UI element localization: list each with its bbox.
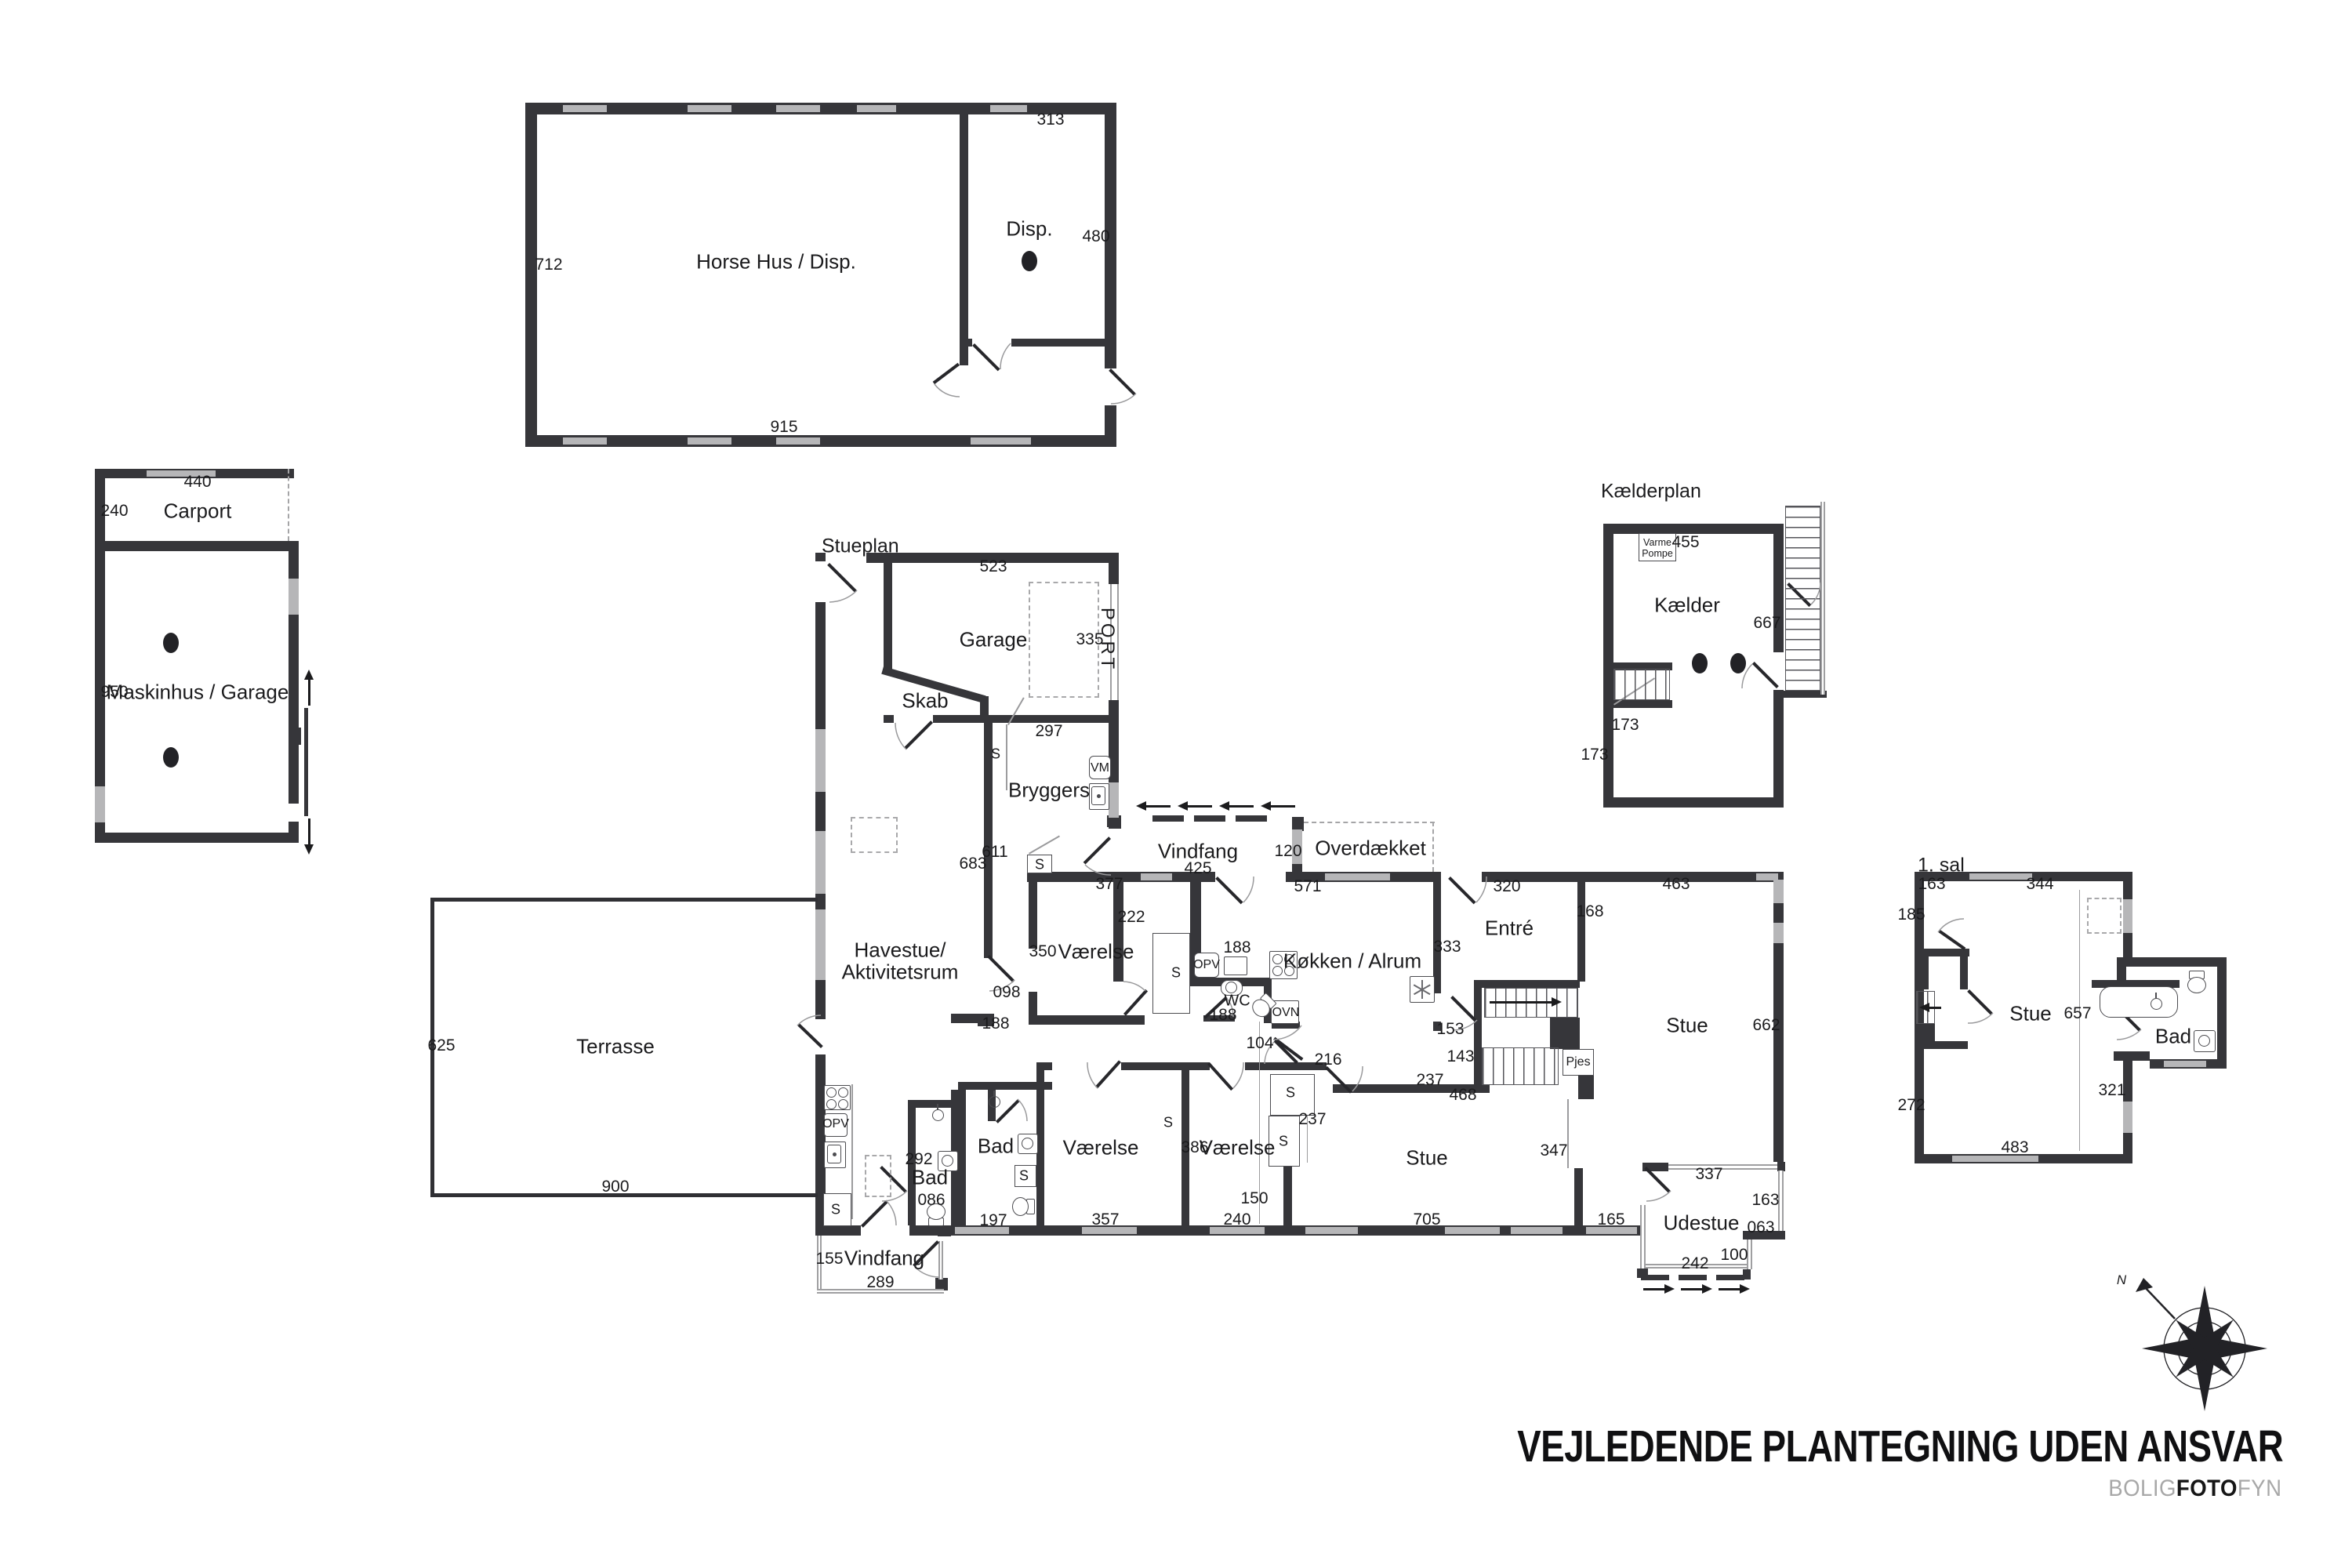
dimension-label: 155 [815,1250,843,1269]
dimension-label: 188 [982,1014,1009,1033]
dimension-label: S [991,746,1000,763]
dimension-label: 900 [601,1178,629,1196]
dimension-label: 347 [1540,1142,1567,1160]
dimension-label: 377 [1095,875,1123,894]
dimension-label: 240 [100,502,128,521]
room-label: Maskinhus / Garage [107,681,289,705]
room-label: Værelse [1058,940,1134,964]
dimension-label: 321 [2098,1081,2125,1100]
dimension-label: 297 [1035,722,1062,741]
dimension-label: 571 [1294,877,1321,896]
room-label: Garage [960,628,1028,652]
dimension-label: S [1279,1134,1288,1150]
dimension-label: 350 [1029,942,1056,961]
room-label: Entré [1485,916,1534,941]
dimension-label: OVN [1272,1006,1300,1020]
dimension-label: 222 [1117,908,1145,927]
dimension-label: 313 [1036,111,1064,129]
dimension-label: 168 [1576,902,1603,921]
room-label: Værelse [1063,1136,1139,1160]
dimension-label: 289 [866,1273,894,1292]
dimension-label: 455 [1671,533,1699,552]
dimension-label: 712 [535,256,562,274]
dimension-label: 120 [1274,842,1301,861]
dimension-label: 197 [979,1211,1007,1230]
dimension-label: 086 [917,1191,945,1210]
room-label: 1. sal [1918,855,1965,877]
floorplan-canvas: Horse Hus / Disp.Disp.313712480915440Car… [0,0,2352,1568]
dimension-label: 063 [1747,1218,1774,1237]
dimension-label: 143 [1446,1047,1474,1066]
room-label: Køkken / Alrum [1283,949,1421,974]
dimension-label: 657 [2063,1004,2091,1023]
room-label: Udestue [1664,1211,1740,1236]
dimension-label: 523 [979,557,1007,576]
dimension-label: OPV [822,1117,849,1131]
dimension-label: 104 [1246,1034,1273,1053]
dimension-label: S [1286,1085,1295,1102]
dimension-label: 237 [1298,1110,1326,1129]
dimension-label: 667 [1753,614,1780,633]
dimension-label: 463 [1662,875,1690,894]
dimension-label: 272 [1897,1096,1925,1115]
room-label: Bad [978,1134,1014,1159]
room-label: Bad [2155,1025,2191,1049]
dimension-label: 150 [1240,1189,1268,1208]
dimension-label: OPV [1193,958,1220,972]
dimension-label: PORT [1096,608,1118,672]
dimension-label: S [1171,965,1181,982]
dimension-label: 705 [1413,1210,1440,1229]
door-arcs [0,0,2352,1568]
compass-icon [2132,1275,2274,1416]
room-label: Aktivitetsrum [842,960,959,985]
brand-logo: BOLIGFOTOFYN [2108,1475,2281,1502]
room-label: Carport [164,499,232,524]
dimension-label: 237 [1416,1071,1443,1090]
room-label: Bad [912,1166,948,1190]
dimension-label: 915 [770,418,797,437]
dimension-label: 240 [1223,1210,1250,1229]
dimension-label: Pjes [1566,1055,1590,1069]
dimension-label: 357 [1091,1210,1119,1229]
brand-part-fyn: FYN [2237,1475,2281,1501]
dimension-label: 320 [1493,877,1520,896]
dimension-label: 185 [1897,906,1925,924]
dimension-label: 242 [1681,1254,1708,1273]
room-label: Overdækket [1315,837,1426,861]
room-label: Vindfang [844,1247,924,1271]
dimension-label: S [1035,857,1044,873]
dimension-label: S [831,1202,840,1218]
room-label: Terrasse [576,1035,655,1059]
room-label: Skab [902,689,948,713]
dimension-label: 173 [1611,716,1639,735]
room-label: Værelse [1200,1136,1276,1160]
dimension-label: 163 [1918,875,1945,894]
brand-part-bolig: BOLIG [2108,1475,2176,1501]
brand-part-foto: FOTO [2176,1475,2237,1501]
room-label: Kælder [1654,593,1720,618]
room-label: Kælderplan [1601,481,1701,503]
dimension-label: 165 [1597,1210,1624,1229]
dimension-label: 425 [1184,859,1211,878]
room-label: Havestue/ [854,938,946,963]
dimension-label: 163 [1751,1191,1779,1210]
disclaimer-title: VEJLEDENDE PLANTEGNING UDEN ANSVAR [1517,1421,2283,1472]
dimension-label: 333 [1433,938,1461,956]
room-label: Stue [1666,1014,1708,1038]
dimension-label: 188 [1223,938,1250,957]
dimension-label: N [2117,1272,2126,1288]
room-label: Disp. [1006,217,1052,241]
room-label: Stue [1406,1146,1448,1171]
dimension-label: S [1163,1115,1173,1131]
dimension-label: VM [1091,761,1109,775]
dimension-label: S [1019,1168,1029,1185]
room-label: Horse Hus / Disp. [696,250,856,274]
room-label: Bryggers [1008,779,1090,803]
dimension-label: 625 [427,1036,455,1055]
dimension-label: 098 [993,983,1020,1002]
dimension-label: 440 [183,473,211,492]
dimension-label: 662 [1752,1016,1780,1035]
dimension-label: 188 [1209,1006,1236,1025]
dimension-label: 344 [2026,875,2053,894]
dimension-label: 611 [982,843,1007,862]
room-label: Stueplan [822,535,899,558]
room-label: Stue [2009,1002,2052,1026]
dimension-label: 480 [1082,227,1109,246]
dimension-label: 950 [100,683,128,702]
dimension-label: 337 [1695,1165,1722,1184]
dimension-label: 173 [1581,746,1608,764]
dimension-label: 153 [1436,1020,1464,1039]
dimension-label: 483 [2001,1138,2028,1157]
dimension-label: 468 [1449,1086,1476,1105]
dimension-label: Pompe [1642,548,1673,559]
dimension-label: Varme [1643,537,1671,548]
dimension-label: 100 [1720,1246,1748,1265]
dimension-label: 216 [1314,1051,1341,1069]
